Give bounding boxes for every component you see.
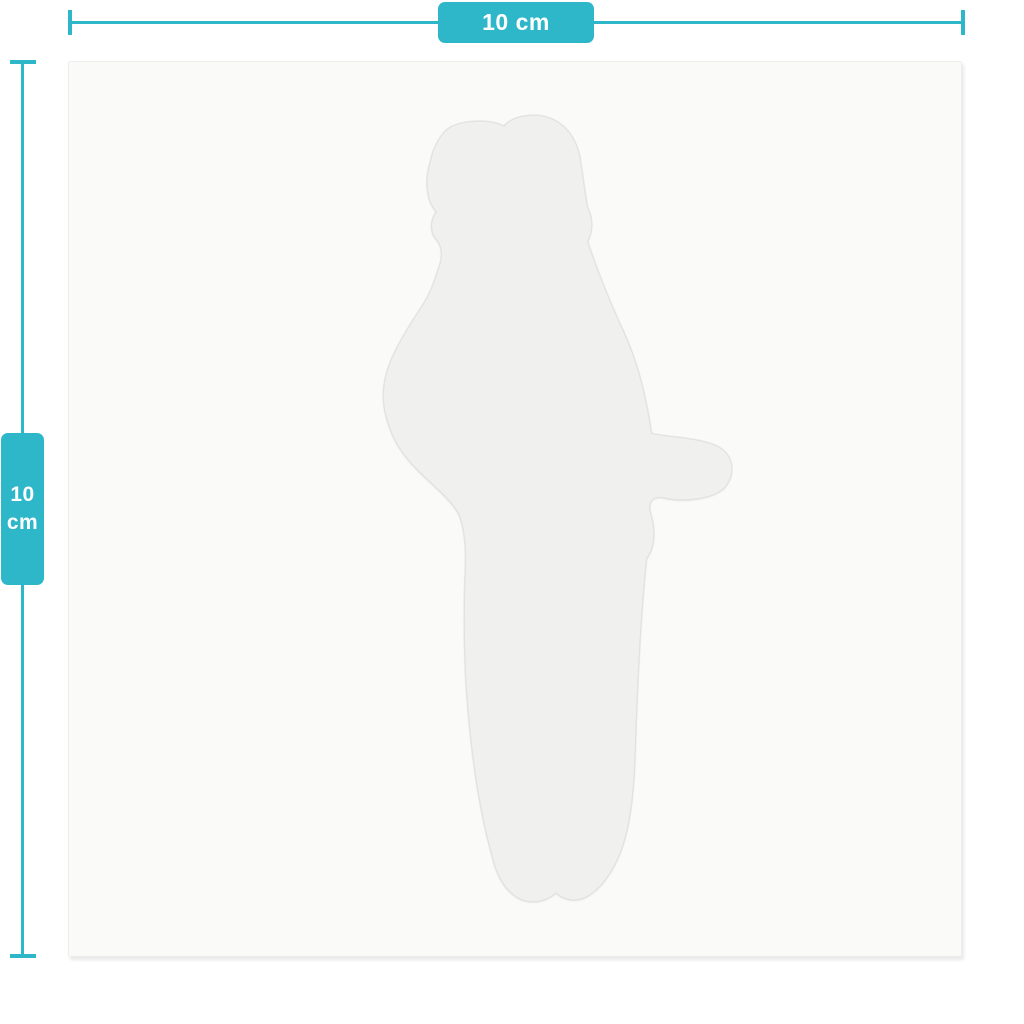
- width-label: 10 cm: [482, 9, 550, 36]
- height-label-badge: 10 cm: [1, 433, 44, 585]
- dimension-diagram: 10 cm 10 cm: [0, 0, 1024, 1024]
- figure-silhouette: [69, 62, 961, 956]
- horizontal-ruler-endcap-right: [961, 10, 965, 35]
- vertical-ruler-endcap-bottom: [10, 954, 36, 958]
- width-label-badge: 10 cm: [438, 2, 594, 43]
- vertical-ruler-endcap-top: [10, 60, 36, 64]
- height-label-value: 10: [10, 481, 34, 509]
- figure-silhouette-path: [383, 115, 732, 902]
- horizontal-ruler-endcap-left: [68, 10, 72, 35]
- height-label-unit: cm: [7, 509, 38, 537]
- product-canvas: [68, 61, 962, 957]
